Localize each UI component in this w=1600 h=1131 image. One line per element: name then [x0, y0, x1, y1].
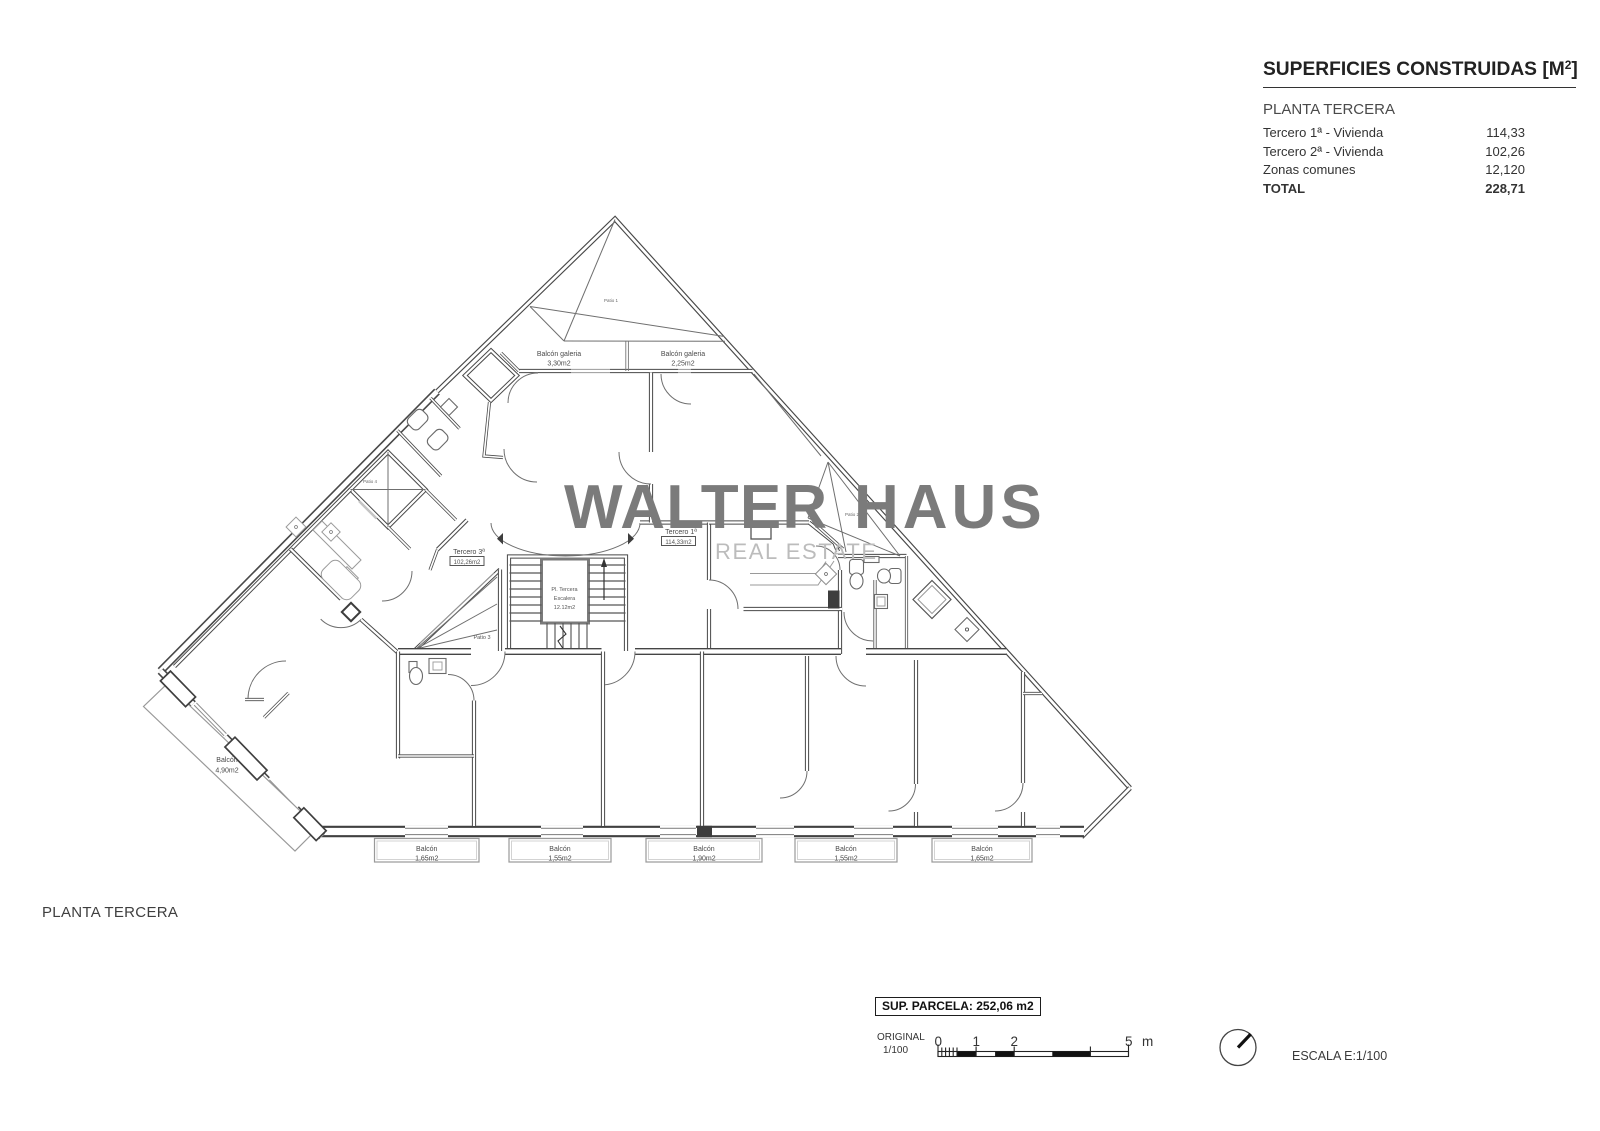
svg-text:HAUS: HAUS: [854, 473, 1046, 542]
svg-text:1,90m2: 1,90m2: [692, 856, 715, 863]
svg-text:Balcón: Balcón: [835, 846, 857, 853]
svg-text:Patio 1: Patio 1: [604, 298, 619, 303]
svg-text:102,26m2: 102,26m2: [454, 560, 481, 566]
svg-text:Balcón: Balcón: [416, 846, 438, 853]
svg-text:Patio 3: Patio 3: [473, 635, 490, 641]
svg-text:WALTER: WALTER: [564, 473, 828, 542]
svg-text:Balcón galeria: Balcón galeria: [661, 351, 705, 358]
svg-text:Tercero 3ª: Tercero 3ª: [453, 549, 485, 556]
svg-text:4,90m2: 4,90m2: [215, 768, 238, 775]
svg-text:Balcón: Balcón: [693, 846, 715, 853]
svg-text:Patio 4: Patio 4: [363, 479, 378, 484]
svg-text:m: m: [1142, 1034, 1153, 1049]
svg-text:12.12m2: 12.12m2: [554, 605, 575, 611]
svg-text:1,55m2: 1,55m2: [834, 856, 857, 863]
svg-text:REAL ESTATE: REAL ESTATE: [715, 539, 878, 564]
svg-text:1,65m2: 1,65m2: [415, 856, 438, 863]
svg-text:1,55m2: 1,55m2: [548, 856, 571, 863]
svg-text:Balcón galeria: Balcón galeria: [537, 351, 581, 358]
svg-text:1,65m2: 1,65m2: [970, 856, 993, 863]
svg-text:3,30m2: 3,30m2: [547, 361, 570, 368]
svg-text:2,25m2: 2,25m2: [671, 361, 694, 368]
svg-text:Pl. Tercera: Pl. Tercera: [551, 587, 578, 593]
svg-text:Balcón: Balcón: [549, 846, 571, 853]
svg-text:Escalera: Escalera: [554, 596, 576, 602]
svg-text:Balcón: Balcón: [971, 846, 993, 853]
